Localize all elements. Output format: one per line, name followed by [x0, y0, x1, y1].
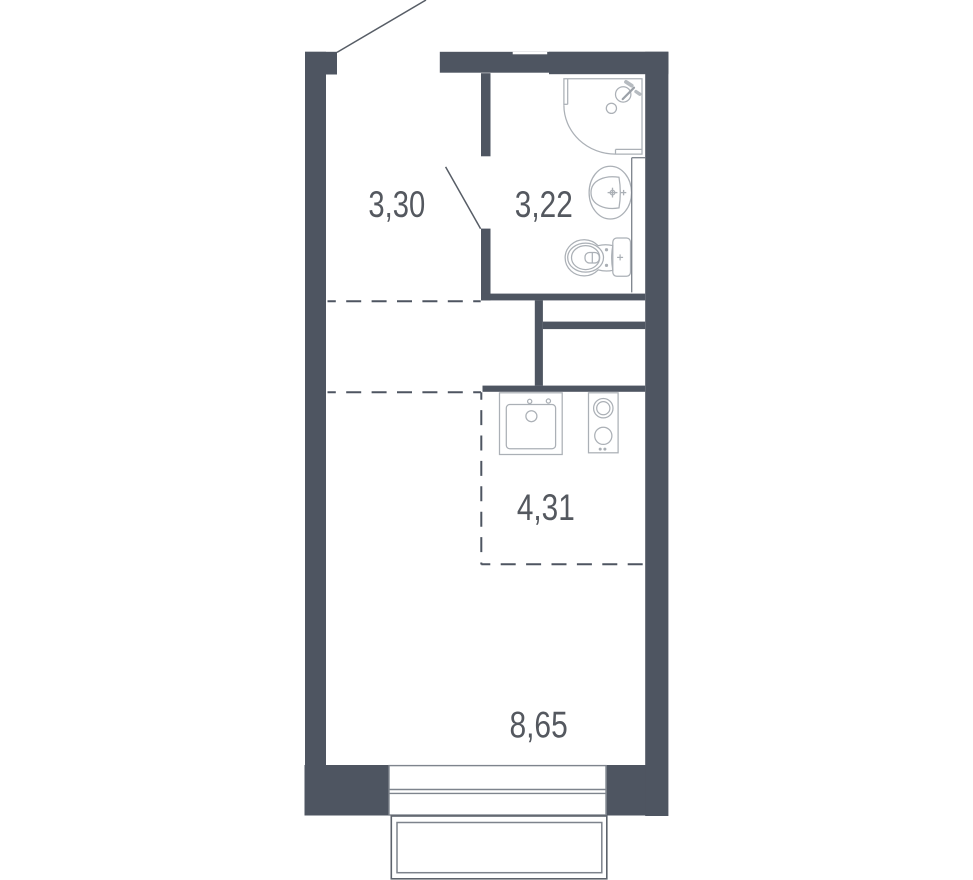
- svg-text:8,65: 8,65: [509, 705, 567, 746]
- svg-text:4,31: 4,31: [517, 487, 575, 528]
- svg-text:3,30: 3,30: [368, 184, 425, 225]
- svg-text:3,22: 3,22: [515, 184, 573, 225]
